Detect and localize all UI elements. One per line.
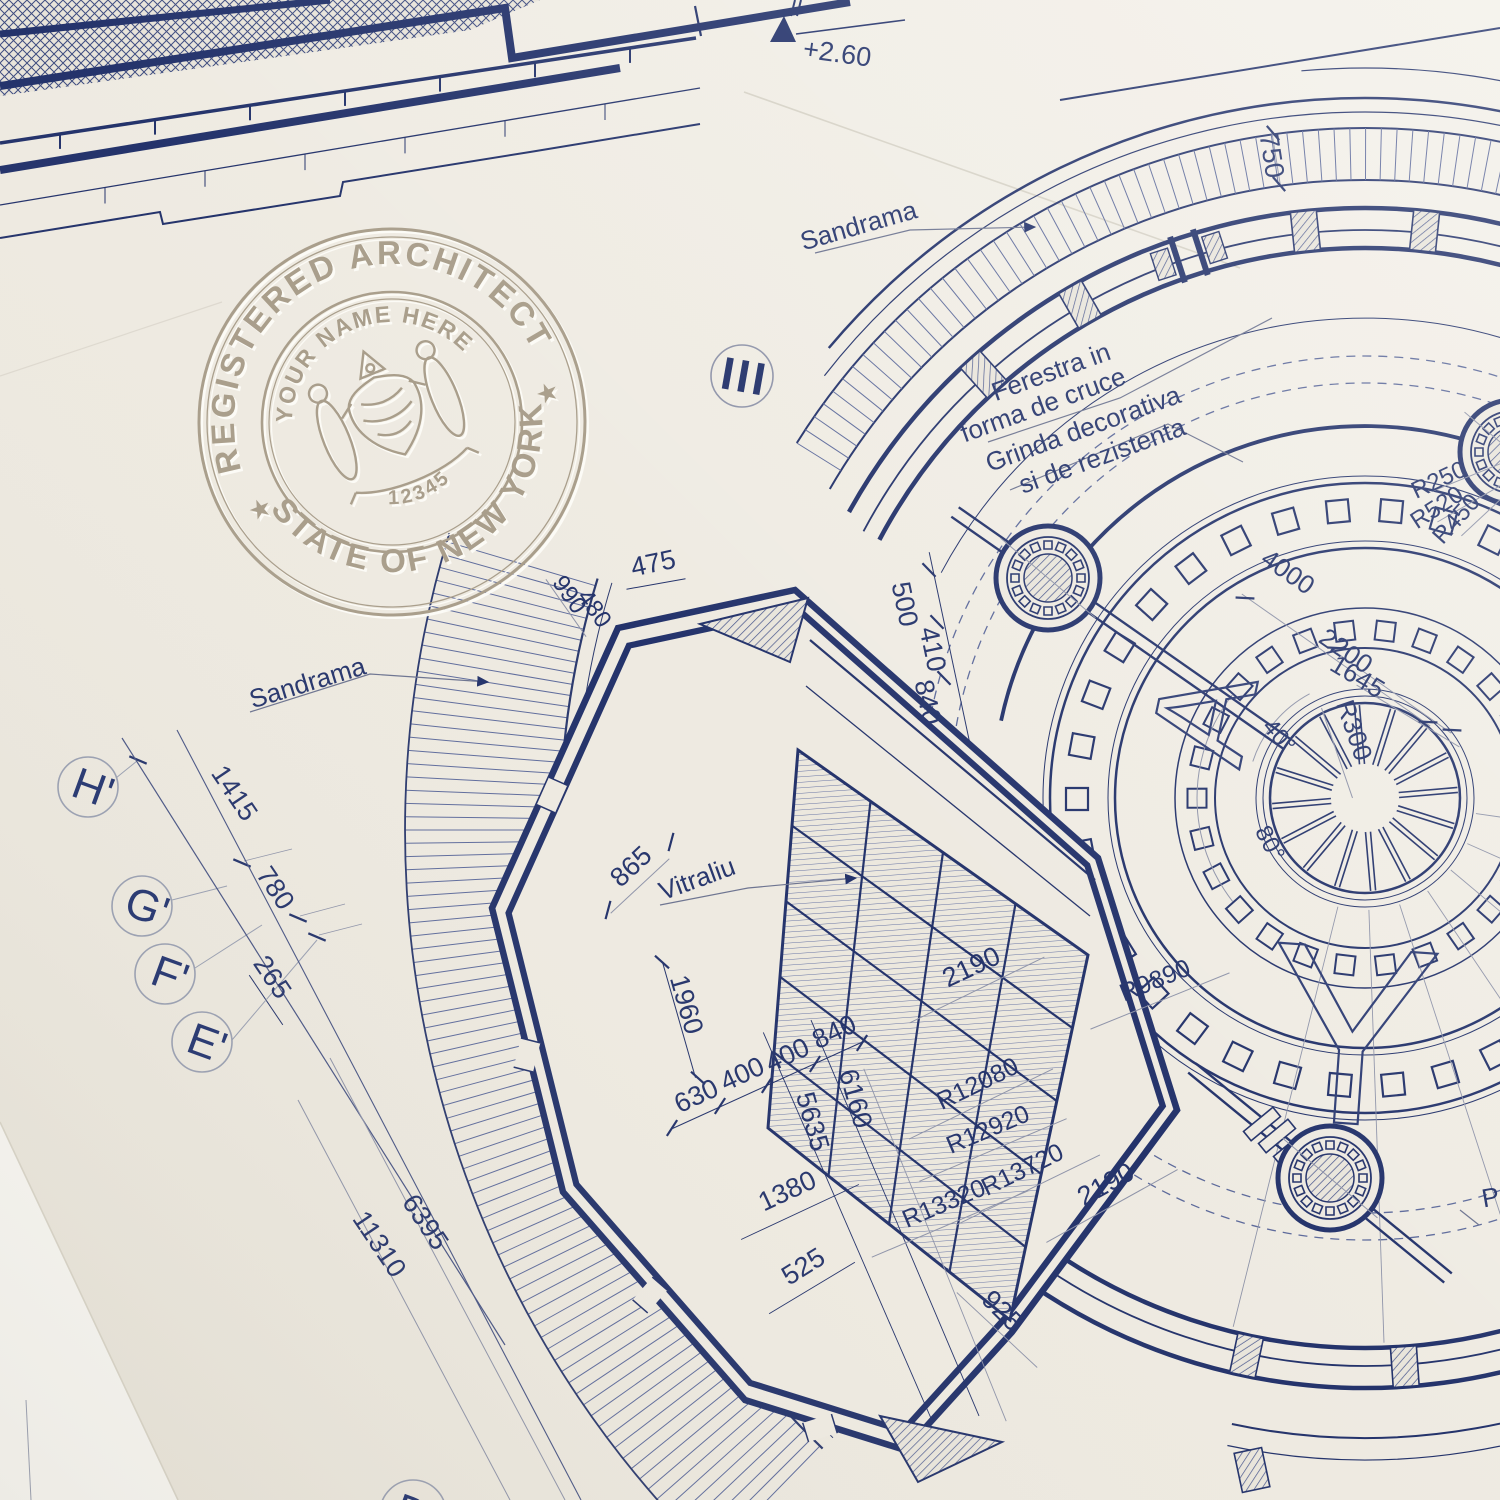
section-marker-label: III <box>717 347 773 406</box>
watermark-letter-y: Y <box>1257 888 1447 1184</box>
blueprint-photo: REGISTERED ARCHITECT STATE OF NEW YORK Y… <box>0 0 1500 1500</box>
blueprint-canvas: REGISTERED ARCHITECT STATE OF NEW YORK Y… <box>0 0 1500 1500</box>
